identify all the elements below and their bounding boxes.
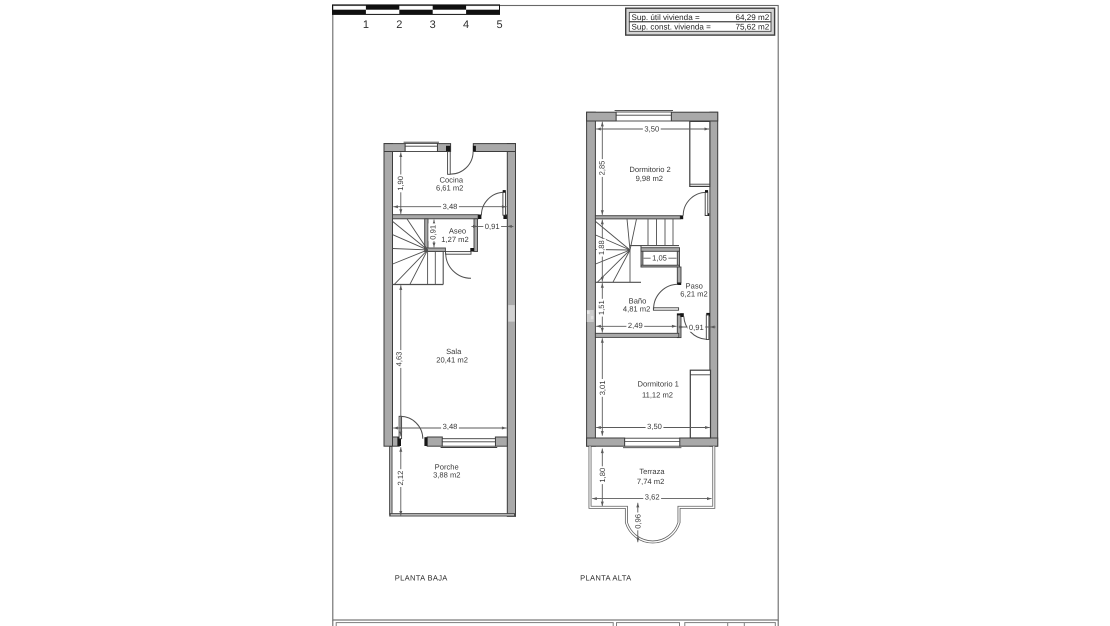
svg-text:Dormitorio 1: Dormitorio 1 bbox=[638, 379, 679, 388]
svg-text:3,50: 3,50 bbox=[644, 124, 659, 133]
svg-text:3,62: 3,62 bbox=[645, 493, 660, 502]
svg-text:3,48: 3,48 bbox=[443, 202, 458, 211]
svg-text:1: 1 bbox=[363, 19, 369, 31]
svg-text:7,74 m2: 7,74 m2 bbox=[637, 477, 664, 486]
svg-text:4,81 m2: 4,81 m2 bbox=[623, 305, 650, 314]
svg-text:3,88 m2: 3,88 m2 bbox=[433, 471, 460, 480]
svg-text:Sup. const. vivienda =: Sup. const. vivienda = bbox=[632, 22, 712, 31]
svg-text:1,27 m2: 1,27 m2 bbox=[441, 235, 468, 244]
svg-text:5: 5 bbox=[496, 19, 502, 31]
svg-text:6,61 m2: 6,61 m2 bbox=[436, 184, 463, 193]
svg-text:Aseo: Aseo bbox=[449, 226, 466, 235]
svg-text:6,21 m2: 6,21 m2 bbox=[680, 290, 707, 299]
svg-text:Sup. útil vivienda =: Sup. útil vivienda = bbox=[632, 13, 700, 22]
svg-text:0,91: 0,91 bbox=[429, 225, 438, 240]
svg-text:4,63: 4,63 bbox=[395, 352, 404, 367]
svg-text:20,41 m2: 20,41 m2 bbox=[436, 356, 468, 365]
svg-text:1,80: 1,80 bbox=[598, 468, 607, 483]
svg-text:1,51: 1,51 bbox=[597, 300, 606, 315]
svg-text:Terraza: Terraza bbox=[639, 467, 665, 476]
svg-text:9,98 m2: 9,98 m2 bbox=[636, 174, 663, 183]
svg-text:0,91: 0,91 bbox=[689, 323, 704, 332]
svg-text:1,90: 1,90 bbox=[396, 176, 405, 191]
svg-text:3,01: 3,01 bbox=[598, 381, 607, 396]
svg-text:1,88: 1,88 bbox=[597, 240, 606, 255]
svg-text:2,49: 2,49 bbox=[628, 321, 643, 330]
svg-text:4: 4 bbox=[463, 19, 469, 31]
svg-text:Dormitorio 2: Dormitorio 2 bbox=[629, 165, 670, 174]
svg-text:11,12 m2: 11,12 m2 bbox=[642, 390, 673, 399]
svg-text:PLANTA BAJA: PLANTA BAJA bbox=[395, 574, 449, 583]
svg-text:2,12: 2,12 bbox=[396, 471, 405, 486]
svg-text:2: 2 bbox=[396, 19, 402, 31]
svg-text:3: 3 bbox=[430, 19, 436, 31]
svg-text:75,62 m2: 75,62 m2 bbox=[736, 22, 770, 31]
svg-text:3,50: 3,50 bbox=[647, 422, 662, 431]
svg-text:2,85: 2,85 bbox=[598, 161, 607, 176]
svg-text:0,96: 0,96 bbox=[633, 514, 642, 529]
svg-text:3,48: 3,48 bbox=[443, 422, 458, 431]
svg-text:0,91: 0,91 bbox=[485, 222, 500, 231]
svg-text:PLANTA ALTA: PLANTA ALTA bbox=[580, 574, 632, 583]
svg-text:1,05: 1,05 bbox=[652, 254, 667, 263]
svg-text:64,29 m2: 64,29 m2 bbox=[736, 13, 770, 22]
